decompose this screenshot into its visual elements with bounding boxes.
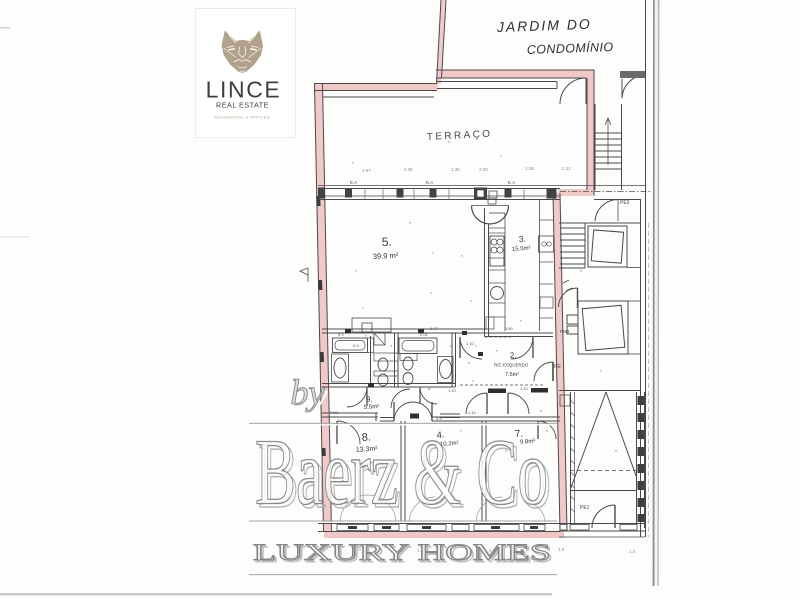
svg-text:PE: PE [554,364,561,370]
svg-text:1.35: 1.35 [451,167,460,172]
svg-text:0.60: 0.60 [505,326,514,331]
svg-text:0.9: 0.9 [338,332,344,337]
svg-text:1.0: 1.0 [629,549,636,554]
svg-text:CONDOMÍNIO: CONDOMÍNIO [527,39,614,57]
svg-text:2.01: 2.01 [420,332,429,337]
svg-text:Baerz & Co: Baerz & Co [255,421,548,525]
svg-text:2.: 2. [510,351,517,360]
svg-text:RESIDENTIAL & OFFICES: RESIDENTIAL & OFFICES [214,115,270,120]
svg-text:1.97: 1.97 [362,168,371,173]
svg-text:R/C ESQUERDO: R/C ESQUERDO [494,363,529,368]
svg-text:9.: 9. [366,395,373,404]
svg-text:PE1: PE1 [580,505,590,511]
svg-text:PE3: PE3 [620,200,630,206]
svg-text:1.10: 1.10 [468,410,477,415]
svg-text:JARDIM DO: JARDIM DO [496,16,592,35]
svg-text:by: by [291,373,325,413]
svg-text:PM3: PM3 [560,329,570,334]
svg-text:5.5m²: 5.5m² [364,404,380,411]
svg-text:5.9: 5.9 [353,343,359,348]
svg-text:1.36: 1.36 [525,166,534,171]
svg-text:3.: 3. [518,234,526,244]
svg-text:1.10: 1.10 [466,341,475,346]
svg-text:0.77: 0.77 [430,326,439,331]
svg-text:E.A: E.A [426,180,433,185]
svg-text:1.0: 1.0 [558,547,565,552]
svg-text:2.00: 2.00 [479,167,488,172]
svg-text:LUXURY HOMES: LUXURY HOMES [253,540,551,566]
svg-text:5.: 5. [381,234,392,249]
svg-text:PM1: PM1 [330,410,339,415]
svg-text:REAL ESTATE: REAL ESTATE [216,101,269,110]
svg-text:E.A: E.A [350,180,357,185]
svg-text:7.5m²: 7.5m² [505,372,519,378]
svg-text:LINCE: LINCE [206,77,282,103]
svg-text:1.10: 1.10 [520,386,529,391]
svg-text:2.12: 2.12 [562,166,571,171]
svg-text:E.A: E.A [508,180,515,185]
svg-text:1.10: 1.10 [448,388,457,393]
svg-text:2.35: 2.35 [404,167,413,172]
svg-text:39.9 m²: 39.9 m² [373,251,399,261]
